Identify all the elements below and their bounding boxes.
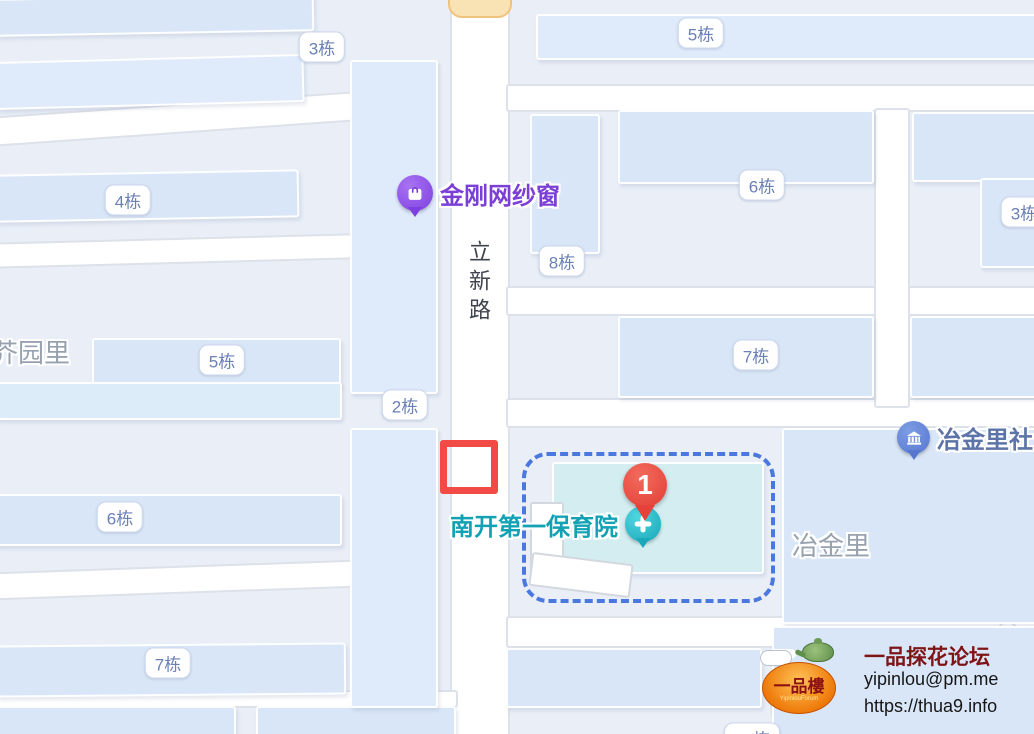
building: [0, 0, 314, 37]
marker-number: 1: [637, 469, 653, 501]
teapot-icon: [802, 642, 834, 662]
poi-yejinli-community[interactable]: 冶金里社: [897, 420, 1033, 455]
building: [0, 494, 342, 546]
building: [506, 648, 762, 708]
building-label: 8栋: [539, 246, 585, 277]
poi-label: 金刚网纱窗: [440, 176, 560, 211]
watermark-url: https://thua9.info: [864, 696, 997, 717]
building-label: 5栋: [678, 18, 724, 49]
area-label: 冶金里: [792, 526, 870, 563]
map-canvas[interactable]: 立新路 3栋5栋4栋6栋3栋8栋7栋5栋2栋6栋7栋13栋芥园里冶金里 金刚网纱…: [0, 0, 1034, 734]
building-label: 3栋: [299, 32, 345, 63]
poi-nankai-kindergarten[interactable]: 南开第一保育院: [450, 506, 661, 542]
watermark-email: yipinlou@pm.me: [864, 669, 998, 690]
building-label: 7栋: [145, 648, 191, 679]
building: [350, 60, 438, 394]
watermark-logo-badge: 一品樓 YipinlouForum: [762, 662, 836, 714]
highway-stub: [448, 0, 512, 18]
road: [450, 0, 510, 734]
road: [0, 560, 354, 601]
shopping-bag-pin-icon: [397, 175, 433, 211]
watermark-logo-text: 一品樓: [774, 678, 825, 695]
building: [0, 54, 305, 110]
poi-label: 南开第一保育院: [450, 507, 618, 542]
road: [0, 233, 354, 268]
road: [506, 84, 1034, 112]
building: [536, 14, 1034, 60]
building-label: 13栋: [724, 723, 780, 734]
building: [350, 428, 438, 708]
building: [256, 706, 456, 734]
building-label: 7栋: [733, 340, 779, 371]
annotation-red-rectangle: [440, 440, 498, 494]
watermark-title: 一品探花论坛: [864, 641, 990, 671]
community-building-pin-icon: [897, 421, 930, 454]
building-label: 2栋: [382, 390, 428, 421]
building-label: 5栋: [199, 345, 245, 376]
building-label: 6栋: [739, 170, 785, 201]
road-label-lixin: 立新路: [462, 240, 494, 327]
watermark-logo-subtext: YipinlouForum: [780, 695, 818, 703]
road: [874, 108, 910, 408]
marker-1[interactable]: 1: [623, 463, 667, 507]
area-label: 芥园里: [0, 333, 70, 370]
building-label: 3栋: [1001, 197, 1034, 228]
building-label: 6栋: [97, 502, 143, 533]
poi-label: 冶金里社: [937, 420, 1033, 455]
watermark-logo: 一品樓 YipinlouForum: [760, 642, 838, 716]
building: [910, 316, 1034, 398]
road: [506, 286, 1034, 316]
building-label: 4栋: [105, 185, 151, 216]
building: [0, 382, 342, 420]
building: [0, 706, 236, 734]
poi-jingang-screen-shop[interactable]: 金刚网纱窗: [397, 175, 560, 211]
building: [912, 112, 1034, 182]
